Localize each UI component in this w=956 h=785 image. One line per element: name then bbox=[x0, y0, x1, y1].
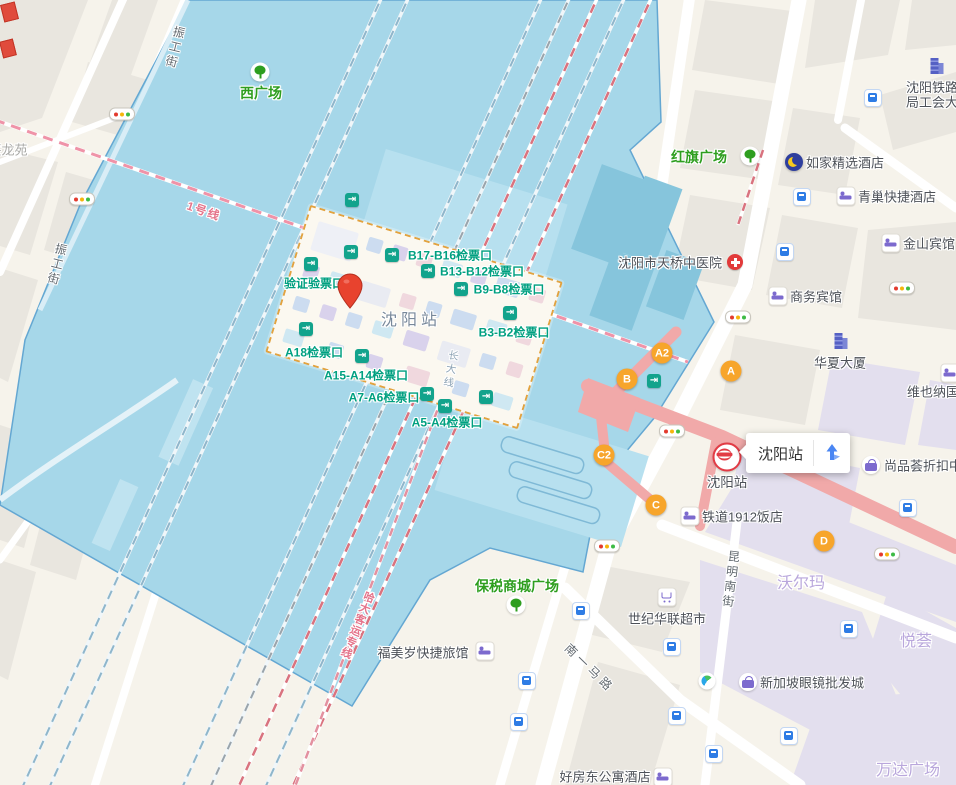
poi-label-tianqiao-hospital[interactable]: 沈阳市天桥中医院 bbox=[618, 253, 722, 272]
gate-icon bbox=[345, 193, 359, 207]
hotel-bed-icon[interactable] bbox=[769, 287, 788, 306]
traffic-light-icon bbox=[594, 540, 620, 553]
bus-stop-icon[interactable] bbox=[518, 672, 536, 690]
metro-exit-d[interactable]: D bbox=[814, 531, 835, 552]
metro-exit-a2[interactable]: A2 bbox=[652, 343, 673, 364]
poi-label-shangwu-hotel[interactable]: 商务宾馆 bbox=[790, 287, 842, 306]
station-name-label: 沈阳站 bbox=[381, 306, 441, 330]
bus-stop-icon[interactable] bbox=[663, 638, 681, 656]
poi-label-qingchao-hotel[interactable]: 青巢快捷酒店 bbox=[858, 187, 936, 206]
poi-label-huaxia-tower[interactable]: 华夏大厦 bbox=[814, 353, 866, 372]
area-label-west-plaza[interactable]: 西广场 bbox=[240, 83, 282, 103]
poi-label-shiji-supermarket[interactable]: 世纪华联超市 bbox=[628, 609, 706, 628]
poi-label-haofangdong-hotel[interactable]: 好房东公寓酒店 bbox=[559, 767, 650, 785]
gate-icon bbox=[344, 245, 358, 259]
supermarket-cart-icon[interactable] bbox=[658, 588, 677, 607]
bus-stop-icon[interactable] bbox=[668, 707, 686, 725]
hospital-cross-icon[interactable] bbox=[727, 254, 743, 270]
gate-label-a15: A15-A14检票口 bbox=[324, 367, 408, 384]
poi-label-xinjiapo-glasses[interactable]: 新加坡眼镜批发城 bbox=[760, 673, 864, 692]
traffic-light-icon bbox=[659, 425, 685, 438]
area-label-xinglongyuan: 兴龙苑 bbox=[0, 140, 28, 159]
gate-label-a5: A5-A4检票口 bbox=[412, 414, 483, 431]
gate-icon bbox=[421, 264, 435, 278]
poi-label-vienna-hotel[interactable]: 维也纳国际 bbox=[907, 382, 956, 401]
gate-label-b3: B3-B2检票口 bbox=[479, 324, 550, 341]
metro-exit-a[interactable]: A bbox=[721, 361, 742, 382]
gate-label-b9: B9-B8检票口 bbox=[474, 281, 545, 298]
gate-icon bbox=[479, 390, 493, 404]
gate-icon bbox=[299, 322, 313, 336]
navigate-arrow-icon bbox=[821, 442, 843, 464]
location-pin[interactable] bbox=[337, 273, 363, 309]
bus-stop-icon[interactable] bbox=[793, 188, 811, 206]
traffic-light-icon bbox=[874, 548, 900, 561]
gate-icon bbox=[420, 387, 434, 401]
poi-label-jinshan-hotel[interactable]: 金山宾馆 bbox=[903, 234, 955, 253]
gate-icon bbox=[503, 306, 517, 320]
traffic-light-icon bbox=[69, 193, 95, 206]
gate-icon bbox=[385, 248, 399, 262]
metro-exit-c2[interactable]: C2 bbox=[594, 445, 615, 466]
bus-stop-icon[interactable] bbox=[572, 602, 590, 620]
traffic-light-icon bbox=[889, 282, 915, 295]
station-infobox[interactable]: 沈阳站 bbox=[746, 433, 850, 473]
poi-label-tiedao-hotel[interactable]: 铁道1912饭店 bbox=[702, 507, 783, 526]
poi-label-rujia-hotel[interactable]: 如家精选酒店 bbox=[806, 153, 884, 172]
building-icon[interactable] bbox=[833, 333, 848, 349]
metro-station-label[interactable]: 沈阳站 bbox=[707, 471, 748, 491]
gate-label-a18: A18检票口 bbox=[285, 344, 343, 361]
bus-stop-icon[interactable] bbox=[780, 727, 798, 745]
bus-stop-icon[interactable] bbox=[864, 89, 882, 107]
area-label-yuehui[interactable]: 悦荟 bbox=[900, 627, 932, 651]
area-label-hongqi-plaza[interactable]: 红旗广场 bbox=[671, 147, 727, 167]
area-label-wanda[interactable]: 万达广场 bbox=[876, 756, 940, 780]
hotel-bed-icon[interactable] bbox=[654, 768, 673, 785]
gate-label-b17: B17-B16检票口 bbox=[408, 247, 492, 264]
hotel-bed-icon[interactable] bbox=[476, 642, 495, 661]
shopping-bag-icon[interactable] bbox=[862, 456, 880, 474]
traffic-light-icon bbox=[109, 108, 135, 121]
poi-label-railway-bureau[interactable]: 沈阳铁路局工会大厦 bbox=[906, 80, 956, 110]
china-mobile-icon[interactable] bbox=[699, 673, 716, 690]
area-label-walmart[interactable]: 沃尔玛 bbox=[777, 569, 825, 593]
gate-icon bbox=[454, 282, 468, 296]
bus-stop-icon[interactable] bbox=[705, 745, 723, 763]
gate-label-b13: B13-B12检票口 bbox=[440, 263, 524, 280]
map-canvas[interactable]: 沈阳站 长大线 验证验票口 B17-B16检票口 B13-B12检票口 B9-B… bbox=[0, 0, 956, 785]
hotel-bed-icon[interactable] bbox=[882, 234, 901, 253]
hotel-bed-icon[interactable] bbox=[837, 187, 856, 206]
gate-icon bbox=[355, 349, 369, 363]
hotel-moon-icon[interactable] bbox=[785, 153, 803, 171]
metro-exit-b[interactable]: B bbox=[617, 369, 638, 390]
building-icon[interactable] bbox=[929, 58, 944, 74]
park-tree-icon[interactable] bbox=[741, 147, 760, 166]
poi-label-shangpinhui[interactable]: 尚品荟折扣中心 bbox=[884, 456, 956, 475]
area-label-baoshui-plaza[interactable]: 保税商城广场 bbox=[475, 576, 559, 596]
bus-stop-icon[interactable] bbox=[510, 713, 528, 731]
gate-label-verify: 验证验票口 bbox=[284, 275, 344, 292]
bus-stop-icon[interactable] bbox=[776, 243, 794, 261]
infobox-title: 沈阳站 bbox=[746, 443, 813, 464]
shopping-bag-icon[interactable] bbox=[739, 673, 757, 691]
hotel-bed-icon[interactable] bbox=[681, 507, 700, 526]
gate-icon bbox=[304, 257, 318, 271]
metro-station-icon[interactable] bbox=[713, 443, 742, 472]
hotel-bed-icon[interactable] bbox=[941, 364, 956, 383]
route-button[interactable] bbox=[814, 442, 850, 464]
gate-label-a7: A7-A6检票口 bbox=[349, 389, 420, 406]
park-tree-icon[interactable] bbox=[251, 63, 270, 82]
traffic-light-icon bbox=[725, 311, 751, 324]
gate-icon bbox=[647, 374, 661, 388]
bus-stop-icon[interactable] bbox=[899, 499, 917, 517]
poi-label-fumeisui-hotel[interactable]: 福美岁快捷旅馆 bbox=[377, 643, 468, 662]
metro-exit-c[interactable]: C bbox=[646, 495, 667, 516]
bus-stop-icon[interactable] bbox=[840, 620, 858, 638]
gate-icon bbox=[438, 399, 452, 413]
park-tree-icon[interactable] bbox=[507, 596, 526, 615]
